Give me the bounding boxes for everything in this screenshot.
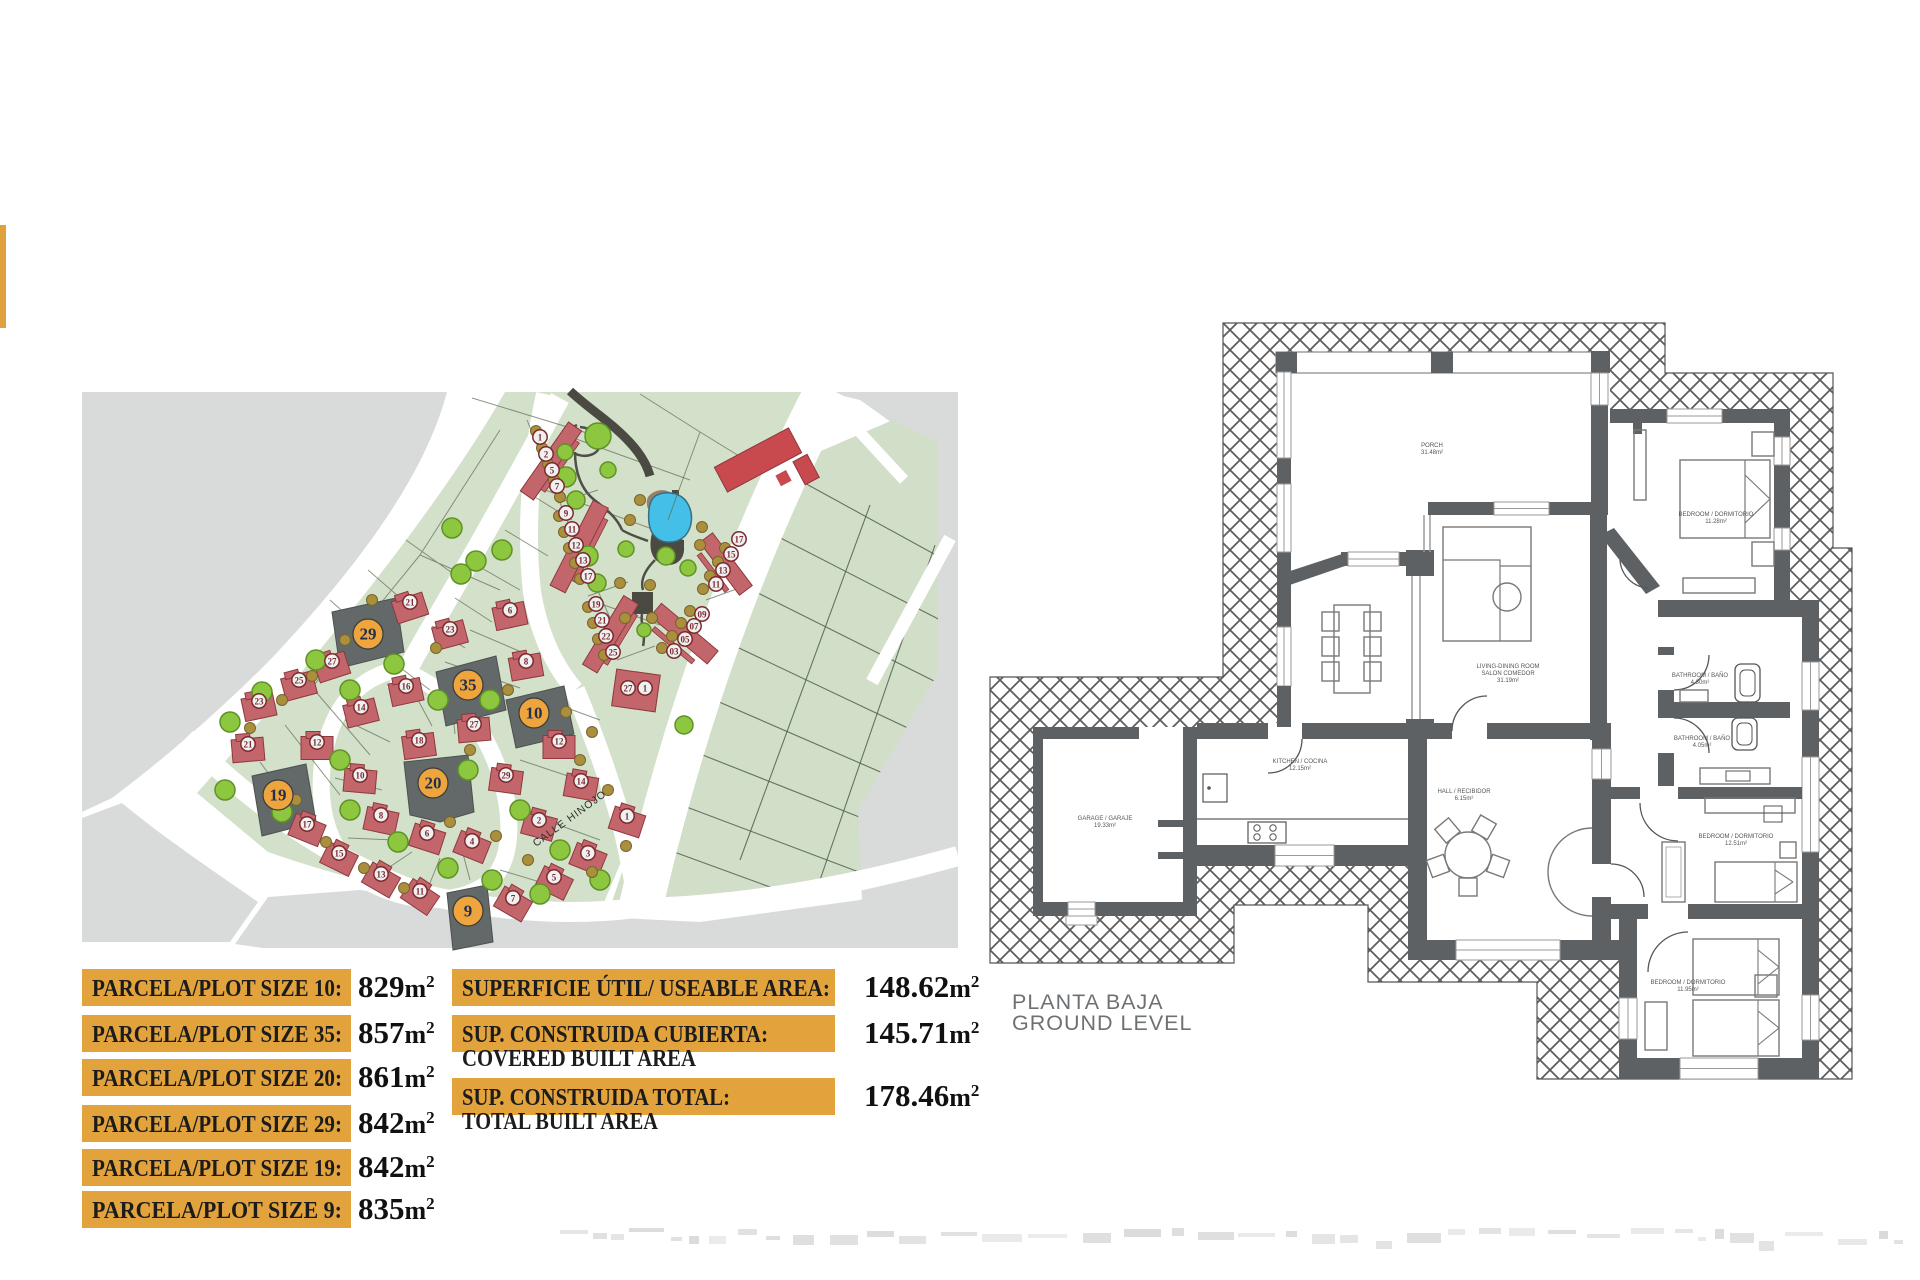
svg-text:SUP. CONSTRUIDA TOTAL:: SUP. CONSTRUIDA TOTAL:: [462, 1085, 730, 1111]
svg-text:1: 1: [625, 812, 630, 822]
svg-text:14: 14: [357, 703, 367, 713]
svg-text:861m2: 861m2: [358, 1059, 435, 1094]
svg-text:PARCELA/PLOT SIZE 35:: PARCELA/PLOT SIZE 35:: [92, 1022, 342, 1048]
svg-text:16: 16: [402, 682, 412, 692]
svg-text:3: 3: [586, 849, 591, 859]
svg-text:17: 17: [303, 820, 313, 830]
svg-text:7: 7: [511, 894, 516, 904]
svg-text:PARCELA/PLOT SIZE 10:: PARCELA/PLOT SIZE 10:: [92, 976, 342, 1002]
svg-text:COVERED BUILT AREA: COVERED BUILT AREA: [462, 1046, 697, 1072]
svg-text:857m2: 857m2: [358, 1015, 435, 1050]
svg-text:148.62m2: 148.62m2: [864, 969, 979, 1004]
svg-text:7: 7: [555, 482, 560, 492]
svg-text:19: 19: [592, 600, 602, 610]
svg-text:145.71m2: 145.71m2: [864, 1015, 979, 1050]
svg-text:4: 4: [470, 837, 475, 847]
svg-text:1: 1: [538, 433, 543, 443]
svg-text:6: 6: [508, 606, 513, 616]
svg-text:17: 17: [584, 572, 594, 582]
svg-text:20: 20: [425, 774, 442, 793]
svg-text:8: 8: [524, 657, 529, 667]
svg-text:PARCELA/PLOT SIZE 19:: PARCELA/PLOT SIZE 19:: [92, 1156, 342, 1182]
svg-text:25: 25: [609, 648, 619, 658]
svg-text:21: 21: [598, 616, 608, 626]
svg-text:10: 10: [526, 704, 543, 723]
svg-text:15: 15: [335, 849, 345, 859]
svg-text:1: 1: [643, 684, 648, 694]
svg-text:12: 12: [572, 541, 582, 551]
svg-text:35: 35: [460, 676, 477, 695]
svg-text:PARCELA/PLOT SIZE 9:: PARCELA/PLOT SIZE 9:: [92, 1198, 342, 1224]
svg-text:12: 12: [555, 737, 565, 747]
svg-text:15: 15: [727, 550, 737, 560]
svg-text:9: 9: [464, 902, 473, 921]
svg-text:21: 21: [406, 598, 416, 608]
svg-text:05: 05: [681, 635, 691, 645]
svg-text:13: 13: [579, 556, 589, 566]
svg-text:5: 5: [550, 466, 555, 476]
svg-text:19: 19: [270, 786, 287, 805]
svg-text:14: 14: [577, 777, 587, 787]
svg-text:PARCELA/PLOT SIZE 20:: PARCELA/PLOT SIZE 20:: [92, 1066, 342, 1092]
svg-text:27: 27: [328, 657, 338, 667]
svg-text:5: 5: [552, 873, 557, 883]
svg-text:9: 9: [564, 509, 569, 519]
svg-text:842m2: 842m2: [358, 1105, 435, 1140]
svg-text:GROUND LEVEL: GROUND LEVEL: [1012, 1011, 1192, 1035]
svg-text:07: 07: [690, 622, 700, 632]
svg-text:8: 8: [379, 811, 384, 821]
svg-text:2: 2: [537, 816, 542, 826]
svg-text:27: 27: [624, 684, 634, 694]
svg-text:178.46m2: 178.46m2: [864, 1078, 979, 1113]
svg-text:29: 29: [502, 771, 512, 781]
svg-text:11: 11: [568, 525, 577, 535]
svg-text:842m2: 842m2: [358, 1149, 435, 1184]
svg-text:SUPERFICIE ÚTIL/ USEABLE AREA:: SUPERFICIE ÚTIL/ USEABLE AREA:: [462, 976, 830, 1002]
svg-text:6: 6: [425, 829, 430, 839]
svg-text:29: 29: [360, 625, 377, 644]
svg-text:PARCELA/PLOT SIZE 29:: PARCELA/PLOT SIZE 29:: [92, 1112, 342, 1138]
svg-text:17: 17: [735, 535, 745, 545]
svg-text:09: 09: [698, 610, 708, 620]
svg-text:23: 23: [255, 697, 265, 707]
svg-text:25: 25: [295, 676, 305, 686]
svg-text:23: 23: [446, 625, 456, 635]
svg-text:SUP. CONSTRUIDA CUBIERTA:: SUP. CONSTRUIDA CUBIERTA:: [462, 1022, 768, 1048]
svg-text:11: 11: [416, 887, 425, 897]
svg-text:829m2: 829m2: [358, 969, 435, 1004]
svg-text:27: 27: [470, 720, 480, 730]
svg-text:13: 13: [377, 870, 387, 880]
svg-text:13: 13: [719, 566, 729, 576]
svg-text:21: 21: [244, 740, 254, 750]
svg-text:18: 18: [415, 736, 425, 746]
svg-text:22: 22: [602, 632, 612, 642]
svg-text:PORCH31.48m²: PORCH31.48m²: [1421, 443, 1443, 456]
svg-text:03: 03: [670, 647, 680, 657]
svg-text:11: 11: [712, 580, 721, 590]
svg-text:835m2: 835m2: [358, 1191, 435, 1226]
svg-text:10: 10: [356, 771, 366, 781]
svg-text:12: 12: [313, 738, 323, 748]
svg-text:TOTAL BUILT AREA: TOTAL BUILT AREA: [462, 1109, 659, 1135]
svg-text:2: 2: [544, 450, 549, 460]
